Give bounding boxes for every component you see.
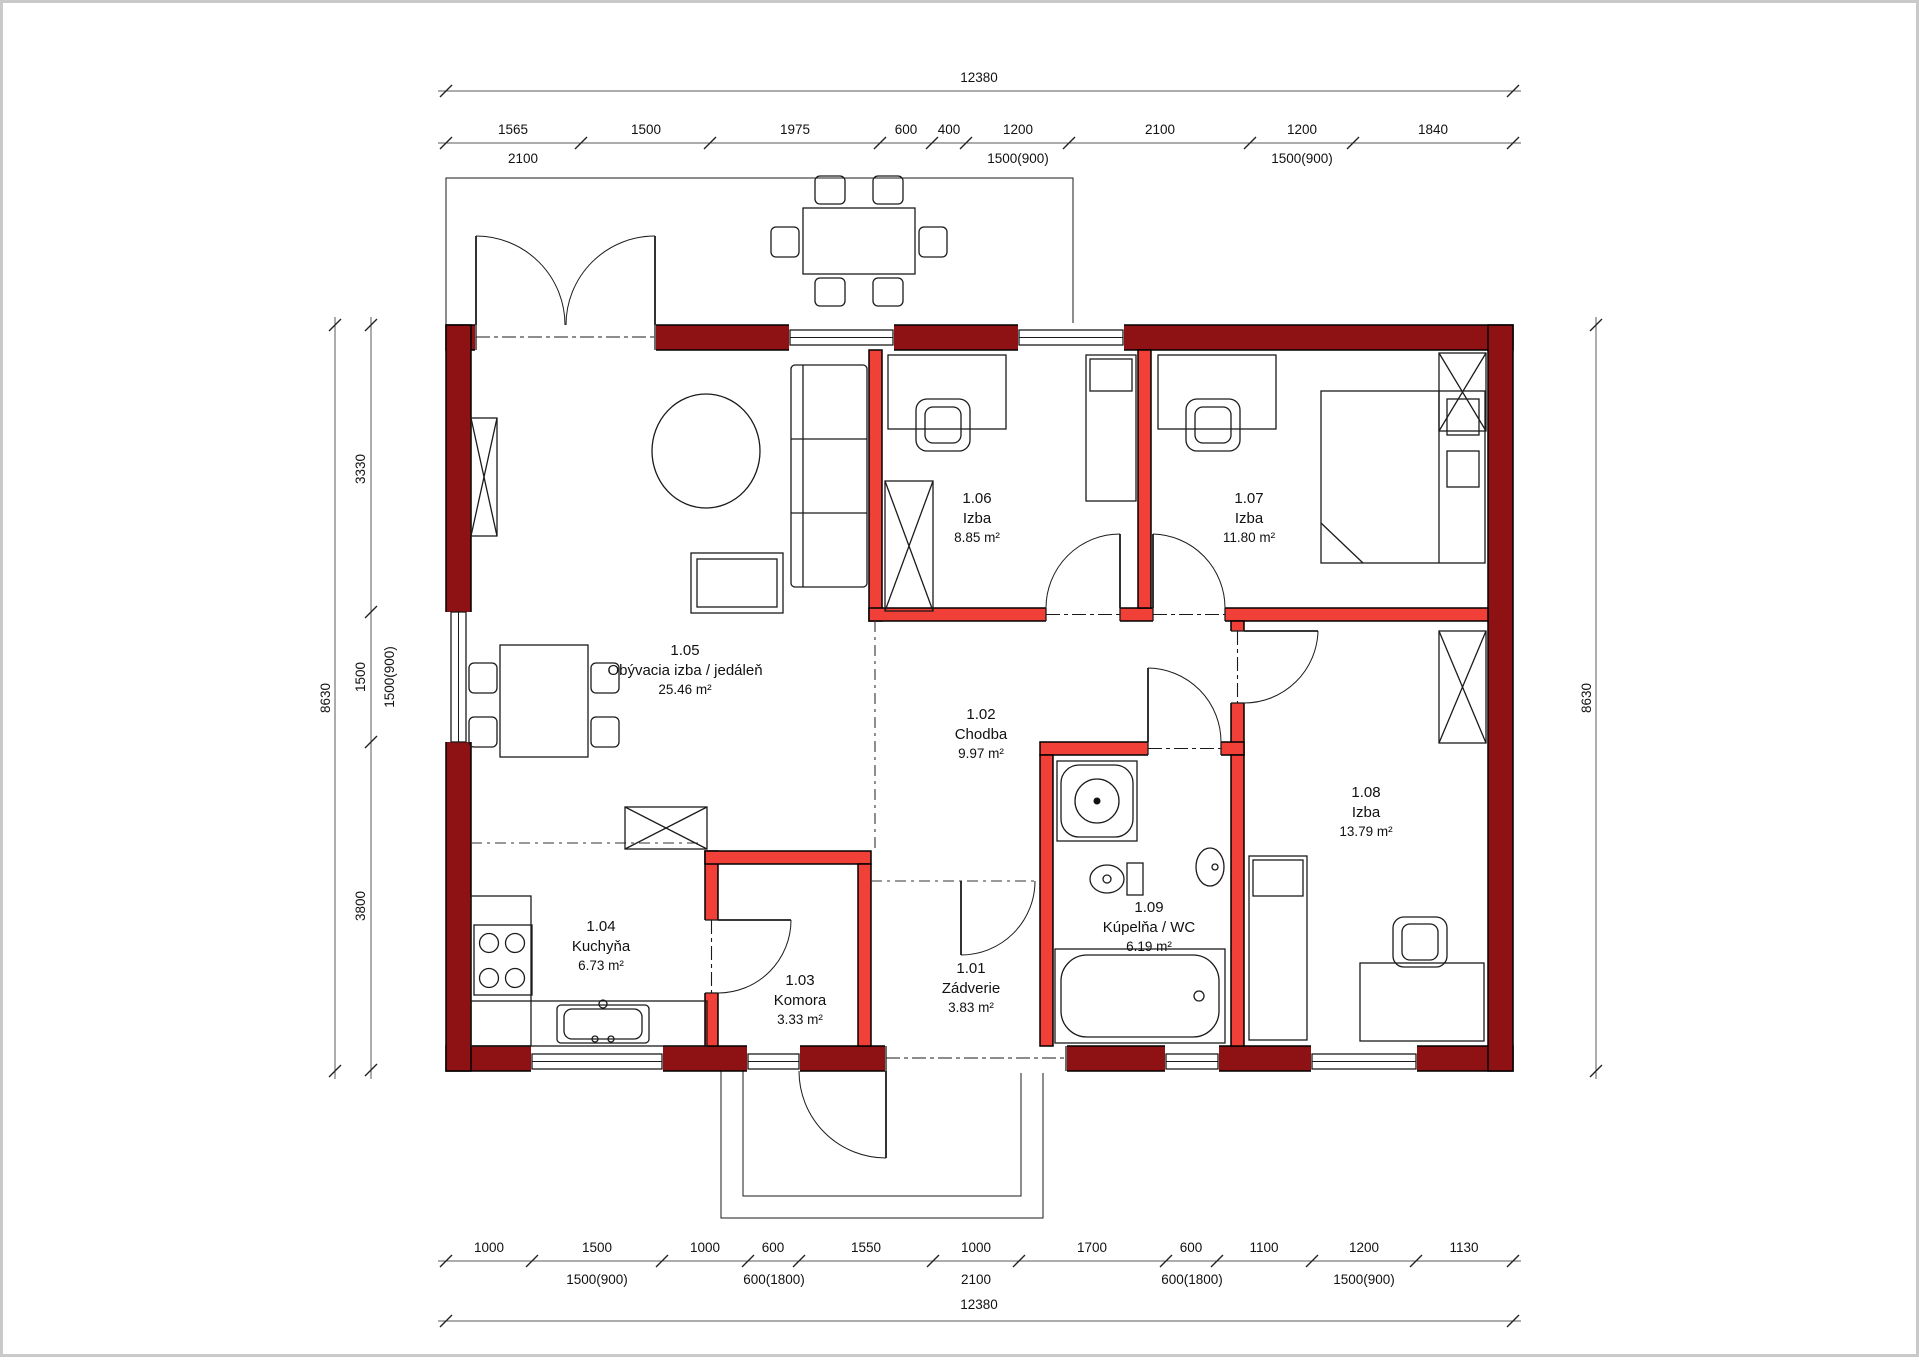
svg-text:1975: 1975 — [780, 122, 810, 137]
door-zadverie — [961, 881, 1035, 955]
svg-text:Izba: Izba — [963, 510, 992, 527]
room-label-1-06: 1.06 Izba 8.85 m² — [954, 490, 1000, 545]
terrace-door — [475, 236, 656, 352]
svg-text:1.01: 1.01 — [956, 960, 985, 977]
dimension-right-total: 8630 — [1579, 317, 1602, 1079]
window-bathroom — [1165, 1044, 1219, 1073]
svg-text:1500(900): 1500(900) — [382, 646, 397, 708]
dimension-bottom-total: 12380 — [438, 1297, 1521, 1327]
desk-chair — [1186, 399, 1240, 451]
room-label-1-02: 1.02 Chodba 9.97 m² — [955, 706, 1008, 761]
svg-text:Izba: Izba — [1352, 804, 1381, 821]
svg-text:2100: 2100 — [961, 1272, 991, 1287]
porch-outline — [721, 1071, 1043, 1218]
room-label-1-04: 1.04 Kuchyňa 6.73 m² — [572, 918, 631, 973]
svg-text:1565: 1565 — [498, 122, 528, 137]
svg-text:8.85 m²: 8.85 m² — [954, 530, 1000, 545]
desk — [888, 355, 1006, 429]
svg-text:13.79 m²: 13.79 m² — [1339, 824, 1393, 839]
svg-text:Chodba: Chodba — [955, 726, 1008, 743]
svg-text:1.07: 1.07 — [1234, 490, 1263, 507]
kitchen-sink — [557, 1000, 649, 1043]
floor-plan-drawing: 1.05 Obývacia izba / jedáleň 25.46 m² 1.… — [3, 3, 1919, 1360]
window-komora — [747, 1044, 800, 1073]
svg-text:1500(900): 1500(900) — [987, 151, 1049, 166]
svg-text:1000: 1000 — [961, 1240, 991, 1255]
window-bedroom3 — [1311, 1044, 1417, 1073]
wardrobe — [1439, 353, 1486, 431]
window-top-1 — [789, 323, 894, 352]
svg-text:600: 600 — [895, 122, 918, 137]
floor-plan-page: 1.05 Obývacia izba / jedáleň 25.46 m² 1.… — [0, 0, 1919, 1357]
svg-text:1000: 1000 — [690, 1240, 720, 1255]
wardrobe — [1439, 631, 1486, 743]
svg-text:Komora: Komora — [774, 992, 827, 1009]
svg-text:Izba: Izba — [1235, 510, 1264, 527]
svg-text:1200: 1200 — [1287, 122, 1317, 137]
coffee-table — [691, 553, 783, 613]
svg-text:600: 600 — [1180, 1240, 1203, 1255]
door-bedroom1 — [1046, 534, 1120, 623]
dining-table-set — [469, 645, 619, 757]
room-label-1-07: 1.07 Izba 11.80 m² — [1223, 490, 1276, 545]
dim-label: 12380 — [960, 70, 998, 85]
dimension-bottom-chain: 1000 1500 1000 600 1550 1000 1700 600 11… — [438, 1240, 1521, 1287]
svg-text:1550: 1550 — [851, 1240, 881, 1255]
room-label-1-08: 1.08 Izba 13.79 m² — [1339, 784, 1393, 839]
svg-text:1000: 1000 — [474, 1240, 504, 1255]
bedroom1-furniture — [885, 355, 1136, 611]
bed-single — [1086, 355, 1136, 501]
desk — [1158, 355, 1276, 429]
svg-text:1.06: 1.06 — [962, 490, 991, 507]
svg-text:1130: 1130 — [1449, 1240, 1478, 1255]
svg-text:1500: 1500 — [631, 122, 661, 137]
svg-text:1200: 1200 — [1003, 122, 1033, 137]
svg-text:600(1800): 600(1800) — [1161, 1272, 1223, 1287]
interior-walls — [705, 350, 1488, 1046]
svg-text:1100: 1100 — [1249, 1240, 1278, 1255]
svg-text:Zádverie: Zádverie — [942, 980, 1000, 997]
toilet — [1090, 863, 1143, 895]
door-bathroom — [1148, 668, 1221, 757]
svg-text:1.03: 1.03 — [785, 972, 814, 989]
svg-text:3.33 m²: 3.33 m² — [777, 1012, 823, 1027]
desk — [1360, 963, 1484, 1041]
bathtub — [1055, 949, 1225, 1043]
svg-text:400: 400 — [938, 122, 961, 137]
terrace-outline — [446, 178, 1073, 325]
window-top-2 — [1018, 323, 1124, 352]
bed-single — [1249, 856, 1307, 1040]
oval-table — [652, 394, 760, 508]
virtual-boundaries — [471, 621, 1038, 881]
desk-chair — [1393, 917, 1447, 967]
dimension-left-chain: 3330 1500 3800 1500(900) — [353, 317, 397, 1079]
terrace-dining-set — [771, 176, 947, 306]
svg-text:11.80 m²: 11.80 m² — [1223, 530, 1276, 545]
svg-text:2100: 2100 — [508, 151, 538, 166]
room-area: 25.46 m² — [658, 682, 712, 697]
sofa — [791, 365, 867, 587]
room-label-1-09: 1.09 Kúpelňa / WC 6.19 m² — [1103, 899, 1196, 954]
bed-double — [1321, 391, 1485, 563]
svg-text:1840: 1840 — [1418, 122, 1448, 137]
svg-text:1.09: 1.09 — [1134, 899, 1163, 916]
svg-text:9.97 m²: 9.97 m² — [958, 746, 1004, 761]
desk-chair — [916, 399, 970, 451]
wardrobe — [885, 481, 933, 611]
washbasin — [1196, 848, 1224, 886]
dimension-left-total: 8630 — [318, 317, 341, 1079]
svg-text:3330: 3330 — [353, 454, 368, 484]
svg-text:1200: 1200 — [1349, 1240, 1379, 1255]
svg-text:1700: 1700 — [1077, 1240, 1107, 1255]
svg-text:6.73 m²: 6.73 m² — [578, 958, 624, 973]
svg-text:3800: 3800 — [353, 891, 368, 921]
door-bedroom2 — [1153, 534, 1225, 623]
dimension-top-chain: 1565 1500 1975 600 400 1200 2100 1200 18… — [438, 122, 1521, 166]
room-labels: 1.05 Obývacia izba / jedáleň 25.46 m² 1.… — [572, 490, 1393, 1027]
stove — [474, 925, 532, 995]
svg-text:Kuchyňa: Kuchyňa — [572, 938, 631, 955]
room-number: 1.05 — [670, 642, 699, 659]
svg-text:1.02: 1.02 — [966, 706, 995, 723]
window-kitchen — [531, 1044, 663, 1073]
svg-text:1500: 1500 — [582, 1240, 612, 1255]
svg-text:1500(900): 1500(900) — [1333, 1272, 1395, 1287]
room-name: Obývacia izba / jedáleň — [607, 662, 762, 679]
svg-text:3.83 m²: 3.83 m² — [948, 1000, 994, 1015]
room-label-1-05: 1.05 Obývacia izba / jedáleň 25.46 m² — [607, 642, 762, 697]
svg-text:Kúpelňa / WC: Kúpelňa / WC — [1103, 919, 1196, 936]
living-room-furniture — [469, 365, 867, 849]
shower — [1057, 761, 1137, 841]
svg-text:8630: 8630 — [1579, 683, 1594, 713]
svg-text:1.04: 1.04 — [586, 918, 615, 935]
svg-text:1500(900): 1500(900) — [566, 1272, 628, 1287]
bedroom2-furniture — [1158, 353, 1486, 563]
room-label-1-03: 1.03 Komora 3.33 m² — [774, 972, 827, 1027]
svg-text:1.08: 1.08 — [1351, 784, 1380, 801]
svg-text:12380: 12380 — [960, 1297, 998, 1312]
svg-text:2100: 2100 — [1145, 122, 1175, 137]
door-bedroom3 — [1229, 631, 1318, 703]
svg-text:8630: 8630 — [318, 683, 333, 713]
svg-text:1500(900): 1500(900) — [1271, 151, 1333, 166]
svg-text:600: 600 — [762, 1240, 785, 1255]
door-komora — [703, 920, 791, 993]
dimension-top-total: 12380 — [438, 70, 1521, 97]
svg-text:6.19 m²: 6.19 m² — [1126, 939, 1172, 954]
svg-text:1500: 1500 — [353, 662, 368, 692]
tv-cabinet — [471, 418, 497, 536]
svg-text:600(1800): 600(1800) — [743, 1272, 805, 1287]
room-label-1-01: 1.01 Zádverie 3.83 m² — [942, 960, 1000, 1015]
